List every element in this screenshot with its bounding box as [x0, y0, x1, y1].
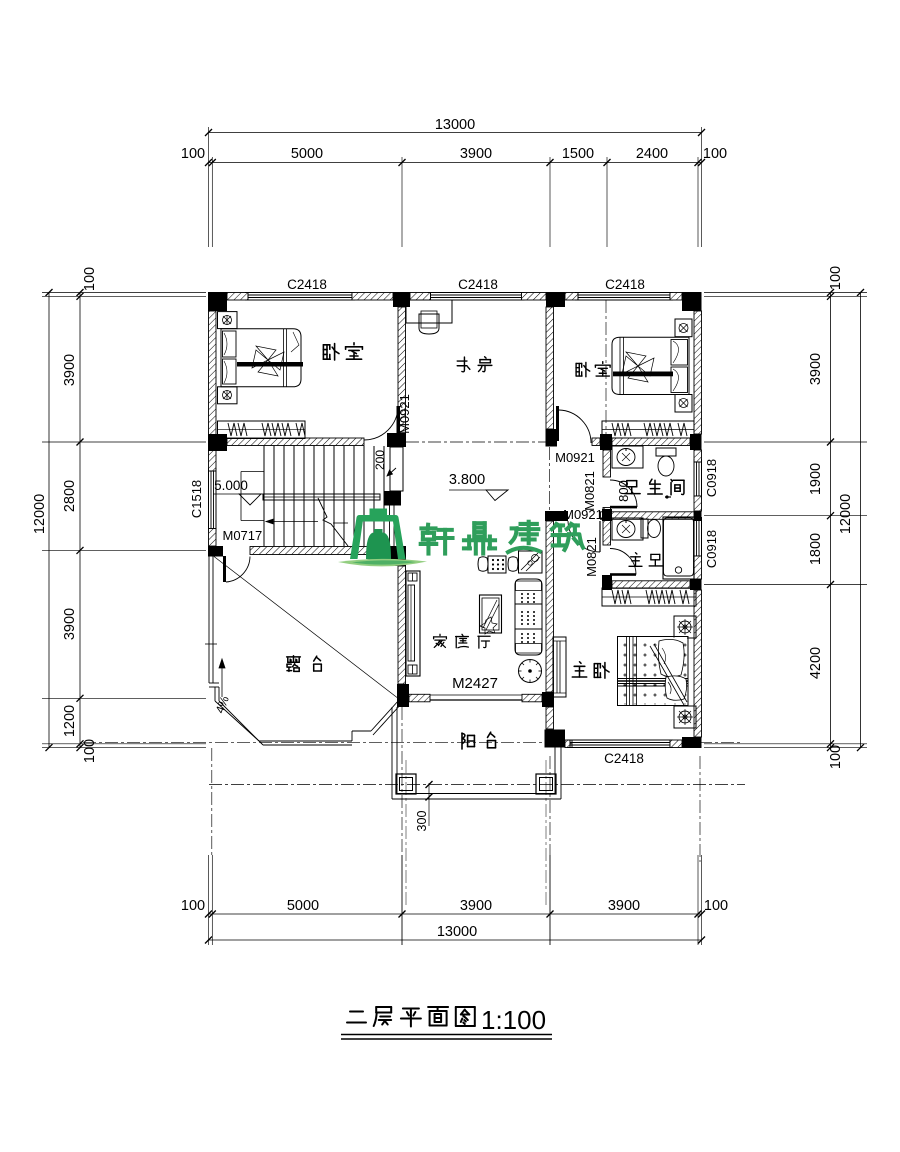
svg-text:100: 100: [828, 745, 844, 769]
svg-text:1500: 1500: [562, 146, 594, 162]
svg-text:C2418: C2418: [458, 277, 498, 292]
svg-text:100: 100: [704, 898, 728, 914]
svg-text:3900: 3900: [62, 608, 78, 640]
svg-text:12000: 12000: [32, 494, 48, 534]
svg-text:100: 100: [181, 146, 205, 162]
svg-text:100: 100: [82, 267, 98, 291]
svg-text:3.800: 3.800: [449, 472, 485, 488]
svg-text:M0821: M0821: [584, 537, 599, 577]
svg-text:300: 300: [415, 811, 429, 832]
svg-text:2800: 2800: [62, 480, 78, 512]
svg-text:C2418: C2418: [287, 277, 327, 292]
svg-text:13000: 13000: [435, 117, 475, 133]
svg-text:1200: 1200: [62, 705, 78, 737]
svg-text:M0921: M0921: [397, 394, 412, 434]
svg-text:5000: 5000: [291, 146, 323, 162]
svg-text:1900: 1900: [808, 463, 824, 495]
svg-text:100: 100: [181, 898, 205, 914]
svg-text:C2418: C2418: [605, 277, 645, 292]
svg-text:3900: 3900: [62, 354, 78, 386]
svg-text:3900: 3900: [808, 353, 824, 385]
svg-text:3900: 3900: [460, 146, 492, 162]
svg-text:100: 100: [703, 146, 727, 162]
svg-text:2400: 2400: [636, 146, 668, 162]
svg-text:4200: 4200: [808, 647, 824, 679]
svg-text:5.000: 5.000: [214, 478, 248, 493]
svg-text:C0918: C0918: [704, 530, 719, 568]
svg-text:200: 200: [373, 450, 387, 470]
svg-text:3900: 3900: [608, 898, 640, 914]
svg-text:5000: 5000: [287, 898, 319, 914]
svg-text:800: 800: [616, 480, 631, 502]
svg-text:1:100: 1:100: [481, 1005, 546, 1035]
svg-text:1800: 1800: [808, 533, 824, 565]
svg-text:M0921: M0921: [555, 450, 595, 465]
svg-text:M2427: M2427: [452, 675, 498, 692]
svg-text:M0821: M0821: [582, 471, 597, 511]
svg-text:M0717: M0717: [223, 528, 263, 543]
svg-text:3900: 3900: [460, 898, 492, 914]
svg-text:C0918: C0918: [704, 459, 719, 497]
svg-text:C1518: C1518: [189, 480, 204, 518]
svg-text:C2418: C2418: [604, 751, 644, 766]
svg-text:12000: 12000: [838, 494, 854, 534]
svg-text:100: 100: [828, 266, 844, 290]
svg-text:13000: 13000: [437, 924, 477, 940]
